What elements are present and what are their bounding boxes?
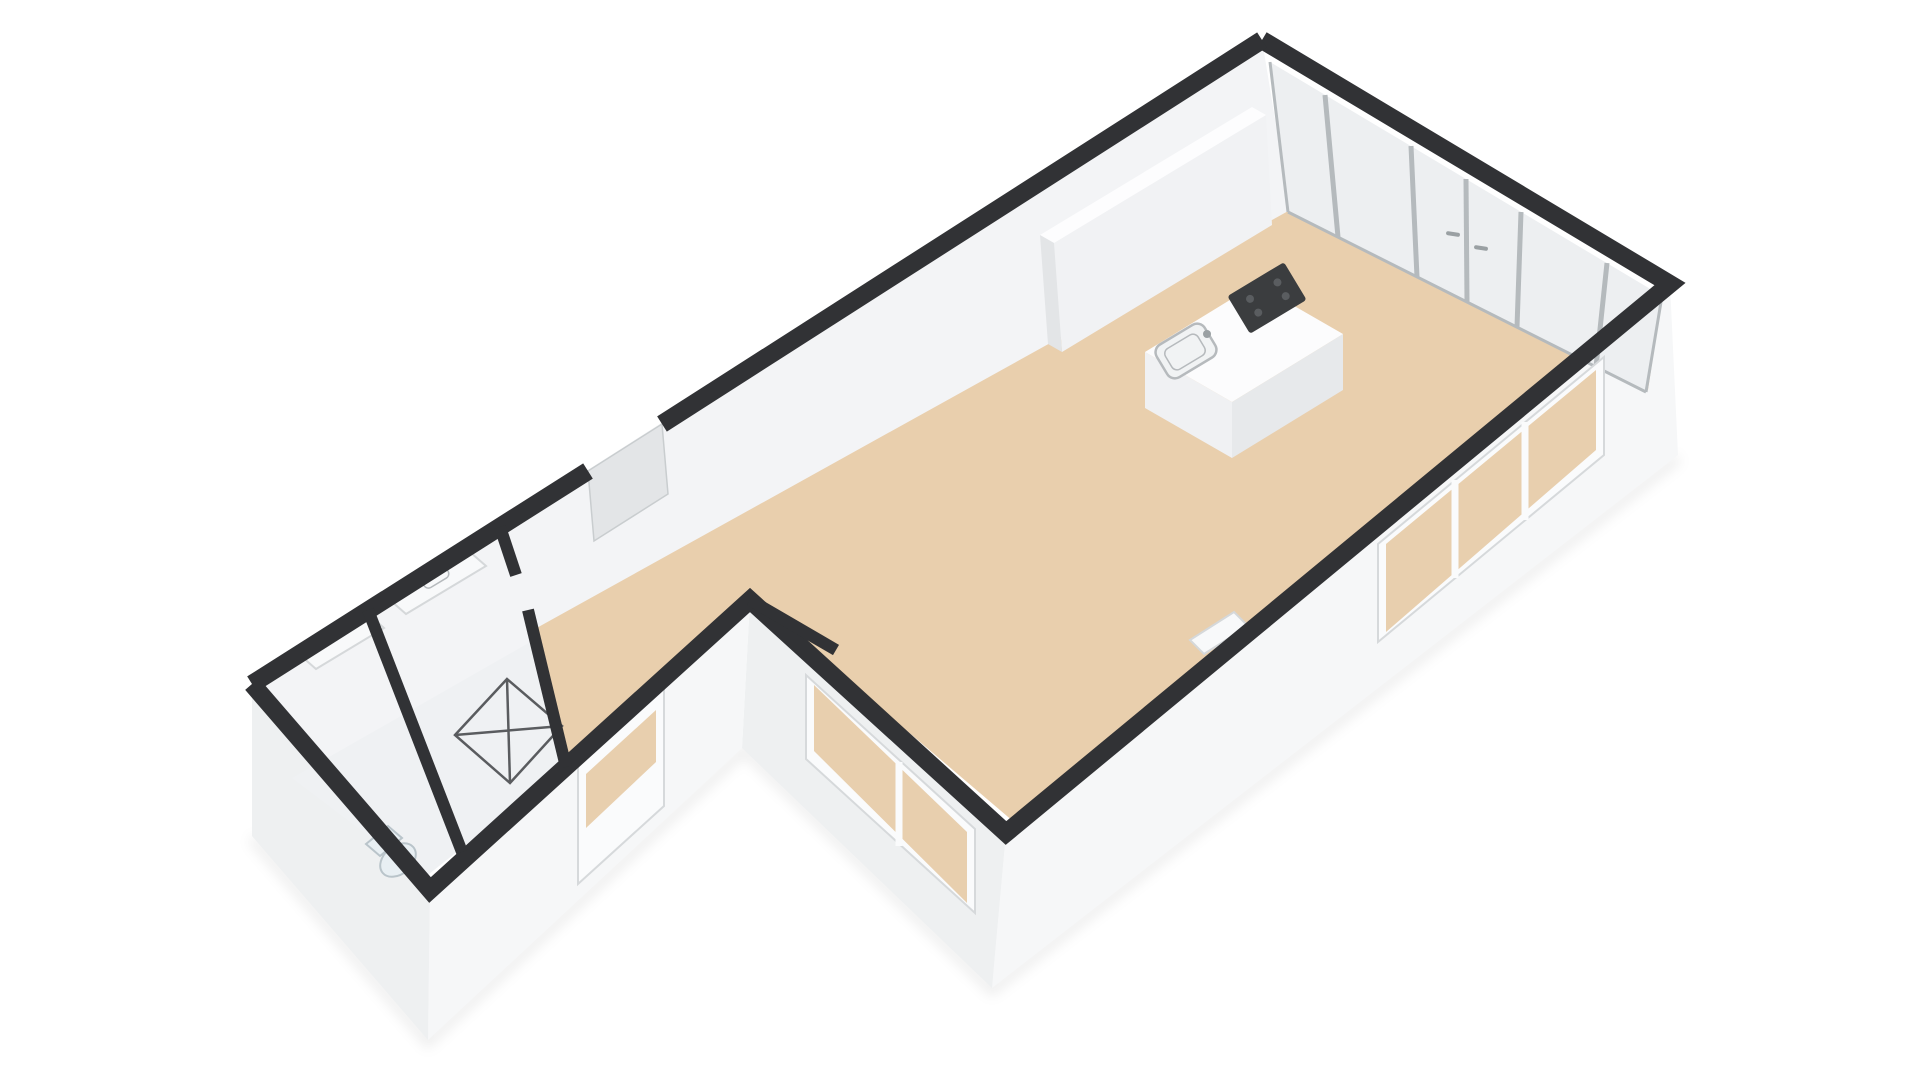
- end-wall-mullion: [1466, 179, 1467, 302]
- floorplan-3d-render: [0, 0, 1920, 1080]
- floorplan-canvas: [0, 0, 1920, 1080]
- faucet: [1203, 330, 1211, 338]
